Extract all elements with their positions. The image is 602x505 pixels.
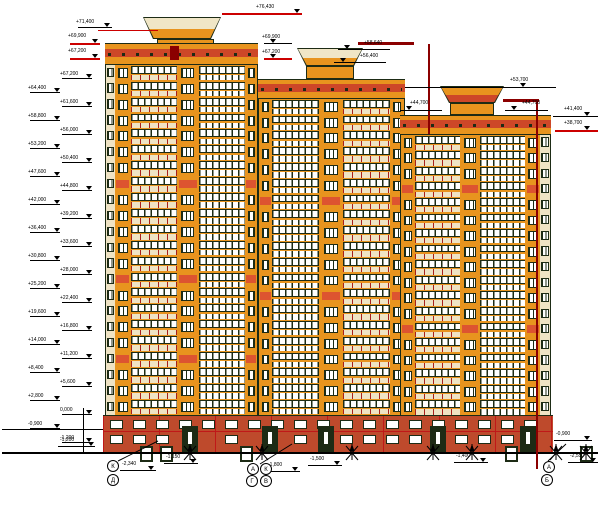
tower-cap [440,86,504,103]
balcony-spandrel [343,393,390,398]
bay-cell [272,383,319,399]
pier-window [464,231,476,241]
floor-row [401,197,550,213]
balcony-spandrel [199,266,245,271]
base-window [156,420,169,429]
pier-window [404,138,412,148]
tower-machine-room [450,103,494,115]
bay-cell [131,97,177,113]
elevation-mark-left-line [30,204,60,205]
floor-row [259,210,404,226]
bay-cell [415,135,460,151]
elevation-mark-left-tick [86,130,92,134]
elevation-mark-left-tick [54,116,60,120]
balcony-spandrel [131,314,177,319]
balcony-glazing [272,210,319,218]
floor-row [259,115,404,131]
bay-cell [131,383,177,399]
edge-cell [106,65,115,81]
base-window [110,420,123,429]
tower-body [258,99,405,415]
elevation-mark-left-tick [54,172,60,176]
elevation-mark-ground-tick [88,442,94,446]
pier-window [262,244,270,254]
balcony-glazing [343,163,390,171]
pier-cell [319,241,343,257]
pier-cell [115,335,131,351]
balcony-glazing [131,193,177,201]
balcony-glazing [199,209,245,217]
bay-cell [272,289,319,305]
pier-cell [319,320,343,336]
pier-cell [259,115,272,131]
bay-cell [480,135,525,151]
bay-cell [131,320,177,336]
balcony-glazing [343,195,390,203]
pier-window [464,371,476,381]
edge-cell [540,337,550,353]
elevation-mark-left-line [62,414,92,415]
base-window [156,435,169,444]
entrance-door-glass [526,432,530,444]
balcony-glazing [131,336,177,344]
bay-cell [131,81,177,97]
basement-well [505,446,518,462]
base-window [110,435,123,444]
balcony-glazing [415,151,460,159]
balcony-glazing [343,368,390,376]
balcony-spandrel [199,330,245,335]
edge-cell [540,213,550,229]
elevation-mark-top-line [338,49,390,50]
elevation-mark-left-line [62,190,92,191]
edge-cell [106,145,115,161]
pier-cell [177,192,199,208]
balcony-spandrel [199,155,245,160]
balcony-spandrel [415,254,460,259]
elevation-mark-left-label: +28,000 [60,268,78,273]
bay-cell [131,65,177,81]
pier-cell [245,81,257,97]
base-window [248,420,261,429]
balcony-glazing [415,385,460,393]
edge-window [107,290,114,299]
balcony-spandrel [343,378,390,383]
pier-cell [460,151,480,167]
pier-window [464,340,476,350]
pier-cell [460,228,480,244]
elevation-mark-top-line [405,87,556,88]
grade-line-left [2,429,103,430]
pier-window [262,307,270,317]
balcony-spandrel [272,172,319,177]
balcony-spandrel [272,299,319,304]
bay-cell [131,192,177,208]
pier-window [404,293,412,303]
balcony-spandrel [272,267,319,272]
elevation-mark-left-tick [86,102,92,106]
bay-cell [199,335,245,351]
pier-cell [319,304,343,320]
balcony-spandrel [343,409,390,414]
elevation-mark-left-tick [54,396,60,400]
floor-row [106,367,257,383]
bay-cell [480,306,525,322]
elevation-mark-left-label: +64,400 [28,86,46,91]
floor-row [401,291,550,307]
balcony-spandrel [199,314,245,319]
balcony-glazing [272,368,319,376]
floor-row [106,383,257,399]
edge-cell [106,240,115,256]
bay-cell [272,368,319,384]
balcony-spandrel [272,314,319,319]
balcony-spandrel [199,202,245,207]
elevation-mark-left-tick [54,144,60,148]
elevation-mark-ground-label: -0,900 [556,432,570,437]
balcony-spandrel [272,330,319,335]
edge-window [541,386,549,395]
pier-cell [401,151,415,167]
pier-accent-panel [246,275,256,283]
pier-cell [319,131,343,147]
pier-cell [401,260,415,276]
pier-cell [319,115,343,131]
pier-window [181,84,194,94]
base-window [225,435,238,444]
elevation-mark-left-label: +42,000 [28,198,46,203]
pier-window [262,323,270,333]
bay-cell [199,160,245,176]
balcony-spandrel [272,235,319,240]
edge-cell [540,400,550,416]
bay-cell [199,224,245,240]
base-window [294,435,307,444]
balcony-spandrel [415,176,460,181]
elevation-mark-ground-line [120,470,156,471]
pier-window [181,131,194,141]
elevation-mark-top-tick [406,106,412,110]
pier-cell [460,182,480,198]
tower-parapet [105,43,258,65]
elevation-mark-left-label: -0,900 [28,422,42,427]
elevation-mark-left-tick [54,256,60,260]
axis-circle: А [247,463,259,475]
bay-cell [343,399,390,415]
pier-window [324,165,338,175]
elevation-mark-ground-tick [148,466,154,470]
elevation-mark-top-line [555,130,598,132]
balcony-glazing [415,307,460,315]
bay-cell [480,384,525,400]
floor-row [259,99,404,115]
balcony-glazing [272,353,319,361]
floor-row [106,272,257,288]
floor-row [259,178,404,194]
pier-window [181,68,194,78]
floor-row [259,368,404,384]
pier-cell [259,336,272,352]
elevation-mark-left-label: +2,800 [28,394,43,399]
parapet-dots [403,124,548,127]
bay-cell [480,228,525,244]
bay-cell [131,113,177,129]
entrance-door-glass [268,432,272,444]
balcony-spandrel [480,269,525,274]
pier-cell [319,146,343,162]
balcony-glazing [480,167,525,175]
elevation-mark-left-line [62,162,92,163]
balcony-glazing [480,291,525,299]
pier-window [404,247,412,257]
edge-window [107,68,114,77]
floor-row [106,176,257,192]
bay-cell [480,337,525,353]
balcony-spandrel [343,330,390,335]
basement-well [240,446,253,462]
balcony-glazing [131,304,177,312]
bay-cell [199,351,245,367]
pier-window [324,339,338,349]
balcony-spandrel [480,207,525,212]
balcony-glazing [415,214,460,222]
pier-window [248,306,255,316]
tower-cap-face [144,18,220,38]
elevation-mark-left-tick [86,242,92,246]
pier-window [248,131,255,141]
bay-cell [343,273,390,289]
pier-cell [177,240,199,256]
balcony-glazing [199,177,245,185]
balcony-spandrel [131,218,177,223]
balcony-spandrel [272,141,319,146]
elevation-mark-top-label: +71,400 [76,20,94,25]
pier-cell [177,65,199,81]
floor-row [401,151,550,167]
floor-row [401,400,550,416]
edge-window [107,402,114,411]
balcony-spandrel [343,141,390,146]
pier-cell [177,81,199,97]
edge-cell [106,208,115,224]
pier-cell [115,240,131,256]
pier-cell [115,399,131,415]
pier-cell [460,322,480,338]
pier-cell [460,166,480,182]
balcony-spandrel [199,234,245,239]
elevation-mark-left-line [30,232,60,233]
balcony-glazing [343,131,390,139]
balcony-spandrel [131,266,177,271]
elevation-mark-left-line [62,78,92,79]
bay-cell [480,322,525,338]
pier-window [324,102,338,112]
elevation-mark-left-line [30,288,60,289]
balcony-glazing [480,400,525,408]
pier-window [404,278,412,288]
balcony-glazing [199,82,245,90]
balcony-glazing [199,145,245,153]
pier-window [118,211,127,221]
bay-cell [480,151,525,167]
bay-cell [272,162,319,178]
bay-cell [131,224,177,240]
pier-window [248,386,255,396]
pier-cell [177,320,199,336]
edge-window [107,354,114,363]
bay-cell [131,288,177,304]
pier-window [464,200,476,210]
entrance-door [520,426,536,453]
pier-cell [401,291,415,307]
bay-cell [199,65,245,81]
pier-window [324,181,338,191]
elevation-mark-left-line [30,92,60,93]
bay-cell [272,210,319,226]
balcony-glazing [199,368,245,376]
balcony-glazing [415,369,460,377]
edge-cell [540,135,550,151]
elevation-mark-left-label: +30,800 [28,254,46,259]
edge-cell [540,182,550,198]
floor-row [106,65,257,81]
edge-cell [540,151,550,167]
elevation-mark-left-line [30,120,60,121]
pier-cell [460,337,480,353]
pier-window [248,322,255,332]
pier-window [181,116,194,126]
floor-row [401,166,550,182]
bay-cell [272,336,319,352]
balcony-glazing [199,288,245,296]
balcony-glazing [480,307,525,315]
edge-cell [540,384,550,400]
edge-cell [106,256,115,272]
bay-cell [343,304,390,320]
balcony-glazing [415,260,460,268]
balcony-spandrel [272,393,319,398]
pier-window [118,195,127,205]
floor-row [259,399,404,415]
pier-cell [401,400,415,416]
balcony-spandrel [415,145,460,150]
balcony-spandrel [272,409,319,414]
pier-cell [401,322,415,338]
pier-accent-panel [322,197,341,205]
floor-row [106,224,257,240]
edge-window [541,402,549,411]
floor-row [259,336,404,352]
pier-cell [177,256,199,272]
pier-window [404,387,412,397]
balcony-glazing [480,354,525,362]
pier-window [248,402,255,412]
floor-row [401,244,550,260]
pier-cell [177,97,199,113]
elevation-mark-top-tick [520,83,526,87]
pier-cell [401,228,415,244]
floor-row [259,383,404,399]
pier-window [324,228,338,238]
axis-circle: Г [246,475,258,487]
pier-window [262,118,270,128]
pier-cell [460,306,480,322]
elevation-mark-ground-tick [292,467,298,471]
pier-cell [401,182,415,198]
elevation-mark-ground-tick [584,436,590,440]
elevation-mark-left-label: +47,600 [28,170,46,175]
base-window [133,420,146,429]
bay-cell [415,384,460,400]
balcony-spandrel [480,285,525,290]
pier-cell [245,256,257,272]
edge-window [541,200,549,209]
base-window [501,420,514,429]
pier-cell [401,135,415,151]
bay-cell [199,208,245,224]
edge-window [541,246,549,255]
tower-body [105,65,258,415]
pier-cell [245,272,257,288]
bay-cell [343,99,390,115]
elevation-mark-left-tick [54,368,60,372]
axis-circle: Д [107,474,119,486]
pier-window [181,195,194,205]
elevation-mark-left-line [30,400,60,401]
pier-window [262,355,270,365]
entrance-door-glass [436,432,440,444]
axis-circle: В [260,475,272,487]
pier-accent-panel [179,275,196,283]
balcony-spandrel [343,314,390,319]
bay-cell [272,257,319,273]
floor-row [259,320,404,336]
balcony-glazing [480,385,525,393]
pier-cell [115,351,131,367]
balcony-glazing [199,161,245,169]
bay-cell [199,113,245,129]
bay-cell [415,368,460,384]
elevation-mark-top-label: +44,700 [522,101,540,106]
elevation-mark-left-label: +36,400 [28,226,46,231]
elevation-mark-top-tick [584,126,590,130]
edge-cell [106,113,115,129]
pier-cell [177,272,199,288]
balcony-glazing [131,114,177,122]
pier-window [262,276,270,286]
pier-window [324,118,338,128]
balcony-glazing [199,114,245,122]
pier-cell [245,399,257,415]
elevation-mark-ground-line [308,465,342,466]
bay-cell [480,353,525,369]
pier-window [248,338,255,348]
balcony-spandrel [199,409,245,414]
edge-window [107,115,114,124]
bay-cell [480,166,525,182]
balcony-spandrel [480,223,525,228]
base-window [340,420,353,429]
floor-row [259,162,404,178]
balcony-glazing [199,304,245,312]
balcony-spandrel [199,91,245,96]
balcony-spandrel [199,393,245,398]
floor-row [401,384,550,400]
pier-window [262,370,270,380]
bay-cell [272,131,319,147]
elevation-mark-left-tick [86,270,92,274]
edge-window [107,274,114,283]
